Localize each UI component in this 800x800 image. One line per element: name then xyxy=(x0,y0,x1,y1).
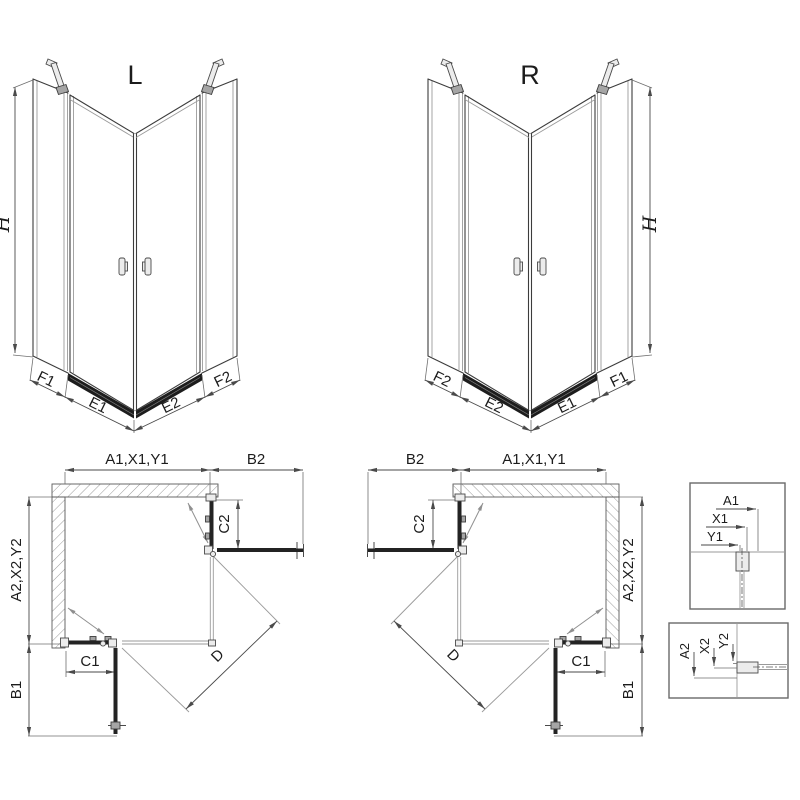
detail-label-a2: A2 xyxy=(677,643,692,659)
view-title-left: L xyxy=(127,60,142,90)
dim-label-f1: F1 xyxy=(34,368,57,391)
dim-label-c2: C2 xyxy=(411,514,428,533)
detail-label-y2: Y2 xyxy=(716,633,731,649)
dim-label-b2: B2 xyxy=(247,451,265,468)
dim-label-d: D xyxy=(208,646,228,666)
dim-label-c1: C1 xyxy=(80,653,99,670)
dim-label-a1: A1,X1,Y1 xyxy=(502,451,565,468)
view-title-right: R xyxy=(520,60,540,90)
detail-label-x2: X2 xyxy=(697,638,712,654)
dim-label-height: H xyxy=(639,215,661,233)
detail-box-wall-profile: A1 X1 Y1 xyxy=(690,483,785,609)
drawing-sheet: L H F1 E1 E2 F2 R H F2 E2 E1 F1 A1,X1,Y1… xyxy=(0,0,800,800)
dim-label-f2: F2 xyxy=(430,368,453,391)
dim-label-b2: B2 xyxy=(406,451,424,468)
technical-diagram: L H F1 E1 E2 F2 R H F2 E2 E1 F1 A1,X1,Y1… xyxy=(0,0,800,800)
detail-label-a1: A1 xyxy=(723,493,739,508)
dim-label-a2: A2,X2,Y2 xyxy=(8,538,25,601)
dim-label-d: D xyxy=(443,646,463,666)
dim-label-a1: A1,X1,Y1 xyxy=(105,451,168,468)
dim-label-b1: B1 xyxy=(8,681,25,699)
dim-label-a2: A2,X2,Y2 xyxy=(620,538,637,601)
plan-view-right: A1,X1,Y1 B2 C2 A2,X2,Y2 C1 B1 D xyxy=(367,451,643,736)
iso-view-left: L H F1 E1 E2 F2 xyxy=(0,59,240,433)
dim-label-height: H xyxy=(0,215,14,233)
dim-label-b1: B1 xyxy=(620,681,637,699)
dim-label-f2: F2 xyxy=(211,368,234,391)
dim-label-c1: C1 xyxy=(571,653,590,670)
iso-view-right: R H F2 E2 E1 F1 xyxy=(425,59,661,433)
detail-box-floor-profile: A2 X2 Y2 xyxy=(669,623,788,698)
plan-view-left: A1,X1,Y1 B2 C2 A2,X2,Y2 C1 B1 D xyxy=(8,451,304,736)
detail-label-y1: Y1 xyxy=(707,529,723,544)
dim-label-c2: C2 xyxy=(216,514,233,533)
detail-label-x1: X1 xyxy=(712,511,728,526)
dim-label-f1: F1 xyxy=(607,368,630,391)
